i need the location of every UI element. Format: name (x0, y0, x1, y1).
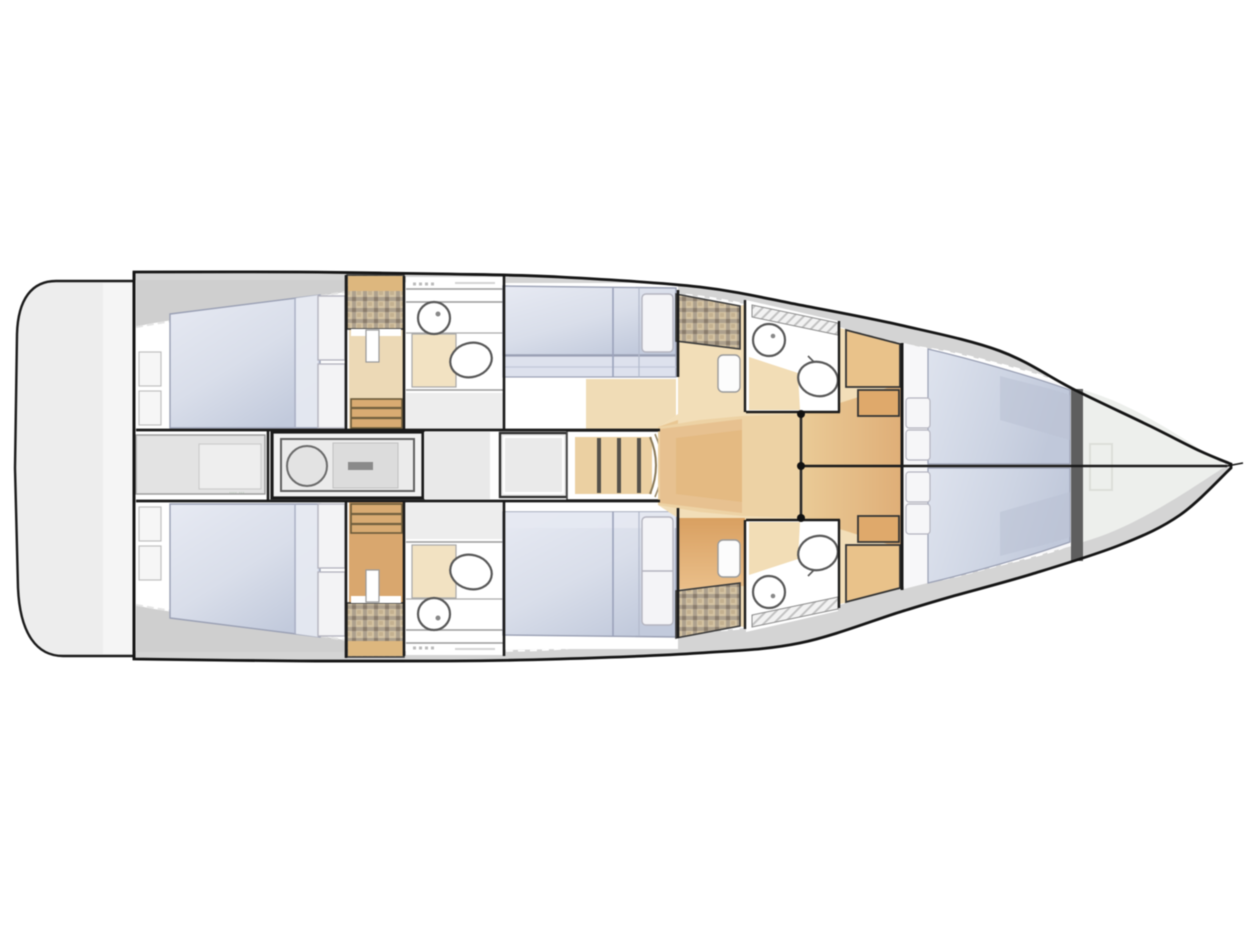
svg-text:.... ...: .... ... (229, 488, 245, 495)
